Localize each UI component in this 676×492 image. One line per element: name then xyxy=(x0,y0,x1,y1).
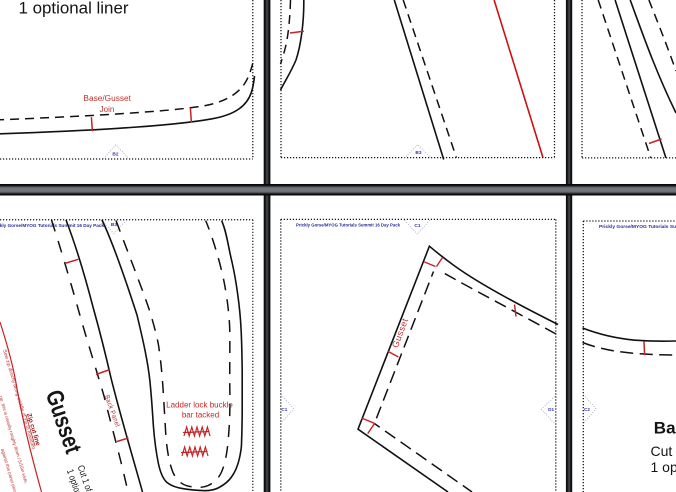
svg-text:C1: C1 xyxy=(281,407,287,412)
svg-text:Prickly Gorse/MYOG Tutorials S: Prickly Gorse/MYOG Tutorials Summit 16 xyxy=(599,224,676,230)
svg-text:1 optional liner: 1 optional liner xyxy=(19,0,129,17)
svg-text:Ladder lock buckle: Ladder lock buckle xyxy=(166,401,233,410)
svg-text:B2: B2 xyxy=(112,152,118,158)
svg-text:bar tacked: bar tacked xyxy=(182,410,219,419)
svg-text:Cut 1 of oute: Cut 1 of oute xyxy=(651,443,676,459)
svg-text:Join: Join xyxy=(100,105,115,114)
svg-text:C2: C2 xyxy=(584,407,590,412)
svg-text:Base: Base xyxy=(654,419,676,438)
svg-text:B3: B3 xyxy=(415,150,421,156)
svg-text:Base/Gusset: Base/Gusset xyxy=(83,94,131,103)
svg-text:1 optional lin: 1 optional lin xyxy=(651,459,676,475)
svg-text:C1: C1 xyxy=(414,223,420,229)
svg-text:Prickly Gorse/MYOG Tutorials S: Prickly Gorse/MYOG Tutorials Summit 16 D… xyxy=(296,222,400,228)
svg-text:D1: D1 xyxy=(548,407,554,412)
